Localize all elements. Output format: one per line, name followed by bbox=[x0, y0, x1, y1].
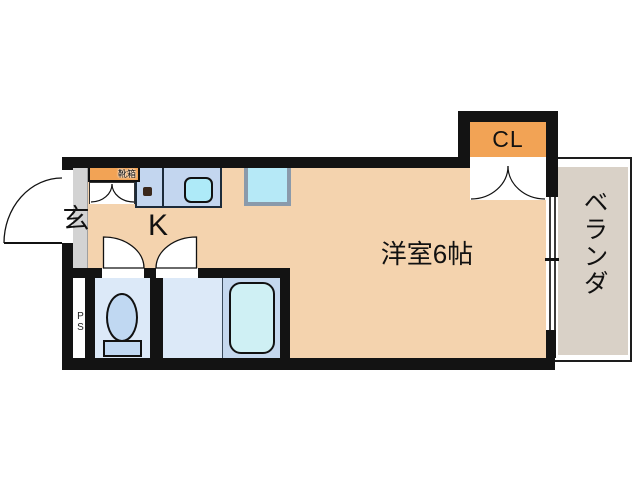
kitchen-counter-divider bbox=[162, 167, 164, 207]
western-room-label: 洋室6帖 bbox=[363, 239, 491, 269]
bath-door-opening bbox=[156, 268, 198, 278]
entrance-door-arc bbox=[4, 178, 62, 243]
veranda-label: ベランダ bbox=[579, 189, 607, 307]
entrance-label: 玄 bbox=[62, 204, 90, 234]
window-pane-line bbox=[554, 197, 556, 330]
wall-bottom bbox=[62, 358, 555, 370]
wall-left-upper bbox=[62, 157, 73, 170]
bathtub bbox=[229, 282, 275, 354]
stove-burner bbox=[143, 187, 152, 196]
closet-interior: CL bbox=[470, 122, 546, 157]
shoe-box-label: 靴箱 bbox=[118, 170, 136, 179]
wall-right-lower bbox=[546, 330, 556, 358]
pipe-space-label: PS bbox=[70, 303, 86, 341]
floor-plan: 靴箱 CL bbox=[0, 0, 640, 480]
toilet-tank bbox=[103, 340, 142, 357]
kitchen-label: K bbox=[141, 211, 175, 241]
window-center-tick bbox=[545, 258, 559, 261]
toilet-door-opening bbox=[102, 268, 144, 278]
toilet-fixture bbox=[106, 293, 138, 342]
closet-left-wall bbox=[458, 111, 470, 168]
window-pane-line bbox=[549, 197, 551, 330]
closet-label: CL bbox=[492, 126, 523, 153]
shoe-box: 靴箱 bbox=[88, 166, 140, 182]
kitchen-sink bbox=[184, 177, 213, 203]
closet-door-area bbox=[470, 157, 546, 200]
wall-top bbox=[62, 157, 460, 168]
shoe-box-doors bbox=[89, 182, 135, 204]
sliding-window bbox=[546, 197, 558, 330]
